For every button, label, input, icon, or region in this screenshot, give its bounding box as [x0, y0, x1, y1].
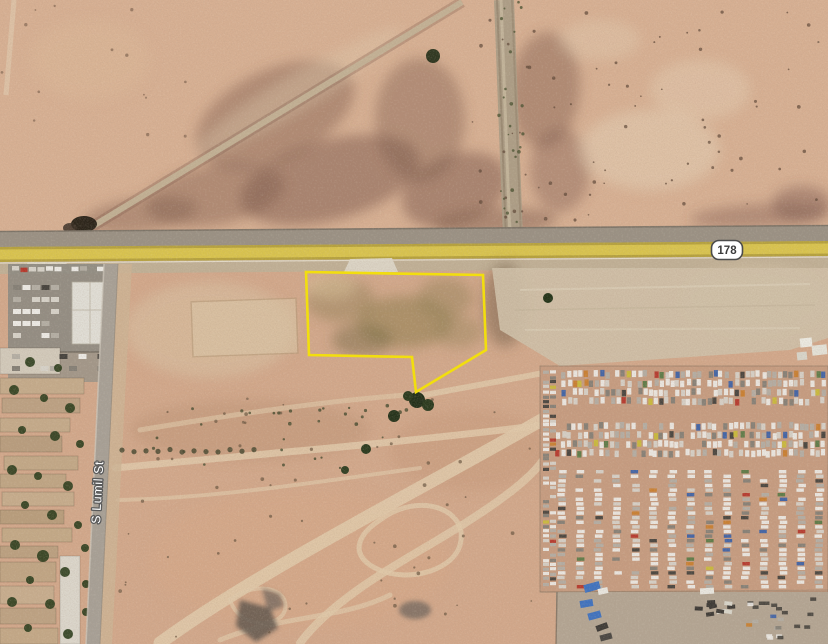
satellite-map[interactable]: 178 S Lumil St: [0, 0, 828, 644]
route-shield: 178: [712, 241, 743, 260]
route-shield-number: 178: [717, 245, 737, 257]
grain-light: [0, 0, 828, 644]
map-canvas: 178 S Lumil St: [0, 0, 828, 644]
